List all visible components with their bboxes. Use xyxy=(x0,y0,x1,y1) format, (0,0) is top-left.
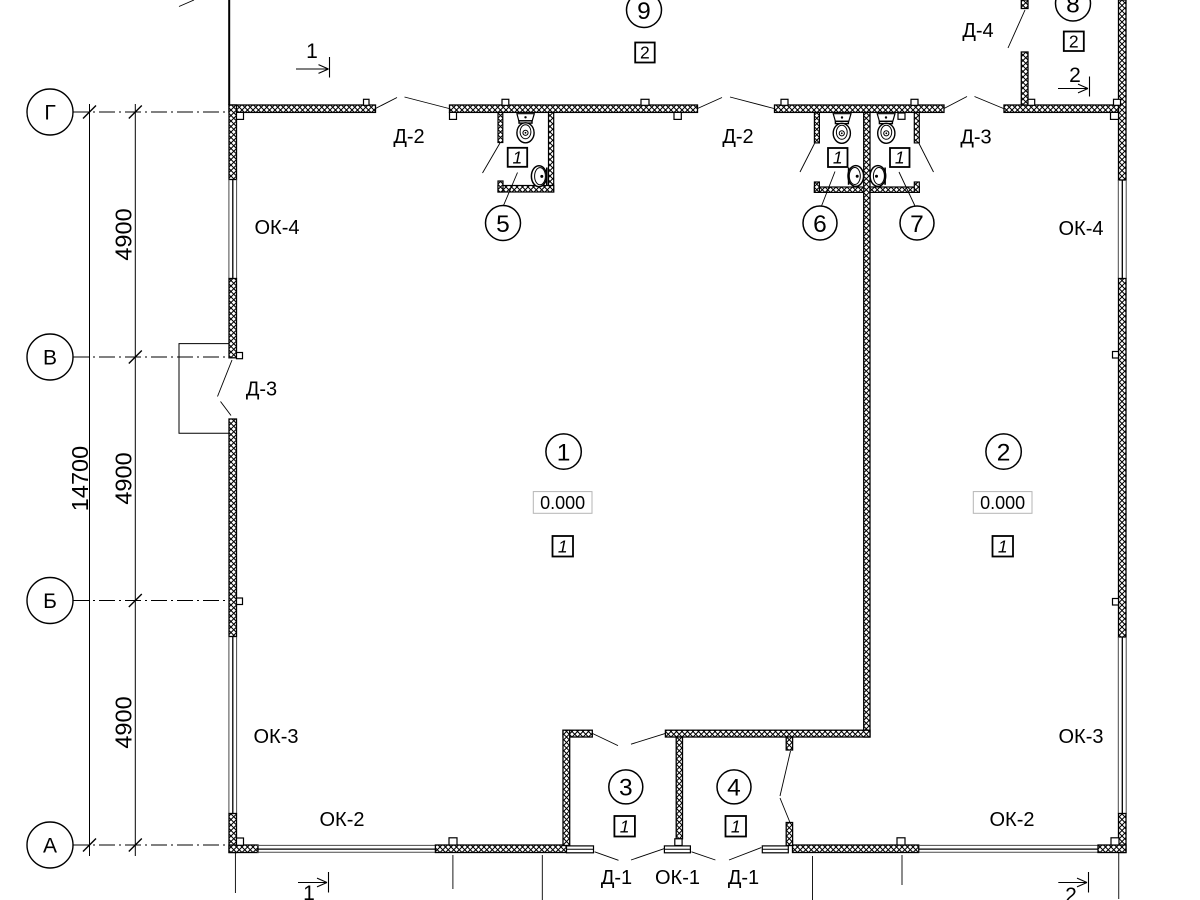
svg-text:ОК-3: ОК-3 xyxy=(254,726,299,748)
svg-text:Д-2: Д-2 xyxy=(393,126,424,148)
svg-text:1: 1 xyxy=(731,817,741,837)
svg-text:Д-2: Д-2 xyxy=(722,126,753,148)
svg-text:2: 2 xyxy=(1069,32,1079,52)
svg-text:2: 2 xyxy=(1065,884,1077,900)
svg-text:8: 8 xyxy=(1066,0,1080,18)
svg-text:1: 1 xyxy=(620,817,630,837)
svg-text:14700: 14700 xyxy=(67,446,93,511)
svg-text:1: 1 xyxy=(513,148,523,168)
svg-text:ОК-2: ОК-2 xyxy=(320,809,365,831)
svg-text:5: 5 xyxy=(496,211,510,238)
svg-text:Д-3: Д-3 xyxy=(960,127,991,149)
svg-text:2: 2 xyxy=(997,439,1011,466)
svg-text:3: 3 xyxy=(619,775,633,802)
svg-text:1: 1 xyxy=(557,439,571,466)
svg-text:0.000: 0.000 xyxy=(540,493,585,513)
svg-text:9: 9 xyxy=(637,0,651,25)
svg-text:2: 2 xyxy=(640,43,650,63)
svg-text:Б: Б xyxy=(43,590,57,613)
svg-text:Д-4: Д-4 xyxy=(962,20,993,42)
svg-text:1: 1 xyxy=(558,537,568,557)
svg-text:ОК-4: ОК-4 xyxy=(1059,218,1104,240)
svg-text:1: 1 xyxy=(306,40,318,63)
svg-text:4900: 4900 xyxy=(111,696,137,748)
svg-text:4900: 4900 xyxy=(111,208,137,260)
svg-text:0.000: 0.000 xyxy=(980,493,1025,513)
svg-text:1: 1 xyxy=(998,537,1008,557)
svg-text:В: В xyxy=(43,347,57,370)
svg-text:7: 7 xyxy=(910,211,924,238)
svg-text:4: 4 xyxy=(727,775,741,802)
svg-text:ОК-3: ОК-3 xyxy=(1059,726,1104,748)
svg-text:2: 2 xyxy=(1069,64,1081,87)
svg-text:1: 1 xyxy=(895,148,905,168)
svg-text:Д-1: Д-1 xyxy=(728,867,759,889)
svg-text:Г: Г xyxy=(44,102,55,125)
svg-text:Д-3: Д-3 xyxy=(246,379,277,401)
svg-text:Д-1: Д-1 xyxy=(601,867,632,889)
svg-text:1: 1 xyxy=(833,148,843,168)
svg-text:4900: 4900 xyxy=(111,452,137,504)
svg-text:1: 1 xyxy=(303,882,315,900)
svg-text:ОК-1: ОК-1 xyxy=(655,867,700,889)
svg-text:6: 6 xyxy=(813,211,827,238)
svg-text:ОК-4: ОК-4 xyxy=(255,217,300,239)
svg-text:ОК-2: ОК-2 xyxy=(990,809,1035,831)
svg-text:А: А xyxy=(43,835,57,858)
